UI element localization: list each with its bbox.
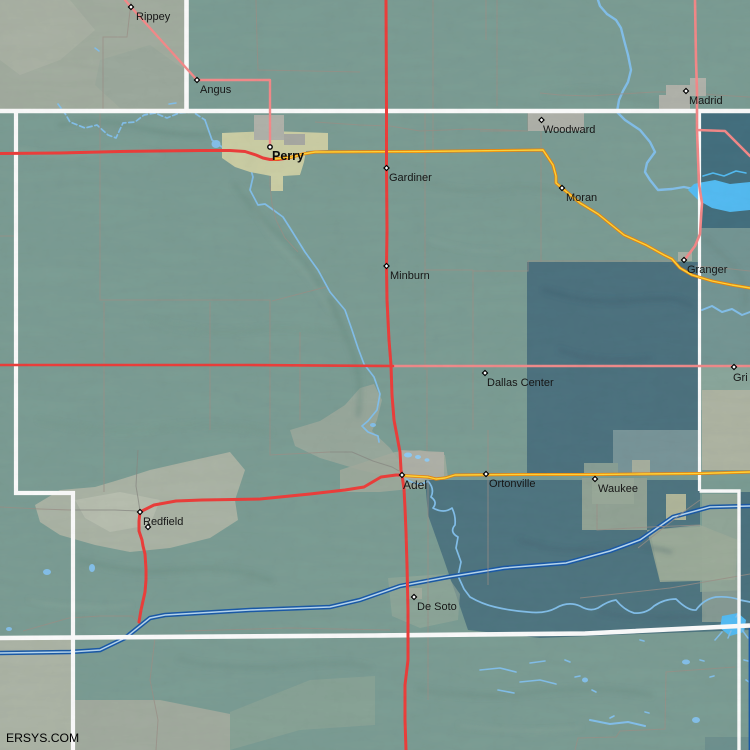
svg-text:Ortonville: Ortonville: [489, 478, 535, 490]
svg-text:Redfield: Redfield: [143, 516, 183, 528]
svg-text:Dallas Center: Dallas Center: [487, 377, 554, 389]
svg-text:Perry: Perry: [272, 149, 304, 163]
svg-text:De Soto: De Soto: [417, 601, 457, 613]
svg-text:ERSYS.COM: ERSYS.COM: [6, 731, 79, 745]
svg-text:Minburn: Minburn: [390, 270, 430, 282]
svg-text:Rippey: Rippey: [136, 11, 171, 23]
svg-text:Madrid: Madrid: [689, 95, 723, 107]
svg-text:Adel: Adel: [403, 478, 427, 492]
svg-text:Waukee: Waukee: [598, 483, 638, 495]
svg-text:Gri: Gri: [733, 372, 748, 384]
svg-text:Woodward: Woodward: [543, 124, 595, 136]
svg-text:Granger: Granger: [687, 264, 728, 276]
svg-text:Moran: Moran: [566, 192, 597, 204]
svg-text:Angus: Angus: [200, 84, 232, 96]
svg-text:Gardiner: Gardiner: [389, 172, 432, 184]
